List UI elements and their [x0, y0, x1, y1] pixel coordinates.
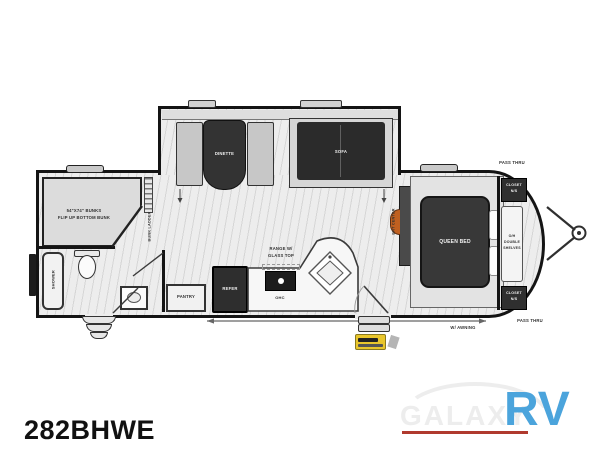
manufacturer-badge — [355, 334, 386, 350]
burner-icon — [278, 278, 284, 284]
ohc-label: OHC — [266, 295, 294, 300]
entertainment-center-label: ENT CENTER — [392, 201, 397, 241]
microwave-outline — [262, 264, 300, 270]
hitch-icon — [547, 207, 586, 260]
range-label-line1: RANGE W/ — [252, 246, 310, 251]
rear-entry-step — [82, 316, 116, 324]
closet-bottom-label-line2: N/S — [501, 297, 527, 302]
manufacturer-badge-text-mark — [358, 338, 378, 342]
shelves-label-line2: DOUBLE — [501, 240, 523, 245]
closet-top-label-line1: CLOSET — [501, 183, 527, 188]
bathroom-sink-bowl-icon — [127, 292, 141, 303]
dealer-logo: GALAXY RV — [392, 378, 602, 448]
entry-step — [358, 324, 390, 332]
dinette-bench-right — [247, 122, 274, 186]
range-label-line2: GLASS TOP — [252, 253, 310, 258]
manufacturer-badge-text-mark — [358, 344, 383, 347]
rear-entry-step — [90, 332, 108, 339]
closet-bottom-label-line1: CLOSET — [501, 291, 527, 296]
shelves-label-line3: SHELVES — [501, 246, 523, 251]
roof-vent-icon — [300, 100, 342, 108]
bunk-ladder-label: BUNK LADDER — [148, 203, 153, 249]
awning-dimension-line — [207, 318, 486, 323]
sofa-label: SOFA — [297, 149, 385, 154]
model-label: 282BHWE — [24, 415, 155, 446]
window-icon — [420, 164, 458, 172]
dinette-label: DINETTE — [203, 151, 246, 156]
roof-vent-icon — [188, 100, 216, 108]
pantry-label: PANTRY — [166, 294, 206, 299]
bath-wall-horizontal — [39, 246, 115, 249]
rear-bumper — [29, 254, 36, 296]
logo-rv-text: RV — [504, 382, 570, 437]
pass-thru-top-label: PASS THRU — [487, 160, 537, 165]
entry-step — [358, 316, 390, 324]
rear-entry-step — [86, 324, 112, 332]
toilet-bowl-icon — [78, 255, 96, 279]
closet-top-label-line2: N/S — [501, 189, 527, 194]
badge-flourish-icon — [387, 335, 399, 349]
floorplan-sheet: 54"X74" BUNKS FLIP UP BOTTOM BUNK BUNK L… — [0, 0, 614, 460]
shower-label: SHOWER — [50, 258, 55, 302]
shelves-label-line1: O/H — [501, 234, 523, 239]
queen-bed-label: QUEEN BED — [420, 239, 490, 246]
logo-underline — [402, 431, 528, 434]
bunks-label-line1: 54"X74" BUNKS — [42, 208, 126, 213]
awning-label: W/ AWNING — [440, 325, 486, 330]
pass-thru-bottom-label: PASS THRU — [505, 318, 555, 323]
refrigerator-label: REFER — [212, 286, 248, 291]
bedroom-front-wall — [497, 176, 500, 310]
window-icon — [66, 165, 104, 173]
bunks-label-line2: FLIP UP BOTTOM BUNK — [42, 215, 126, 220]
dinette-bench-left — [176, 122, 203, 186]
bath-wall-vertical — [162, 250, 165, 312]
